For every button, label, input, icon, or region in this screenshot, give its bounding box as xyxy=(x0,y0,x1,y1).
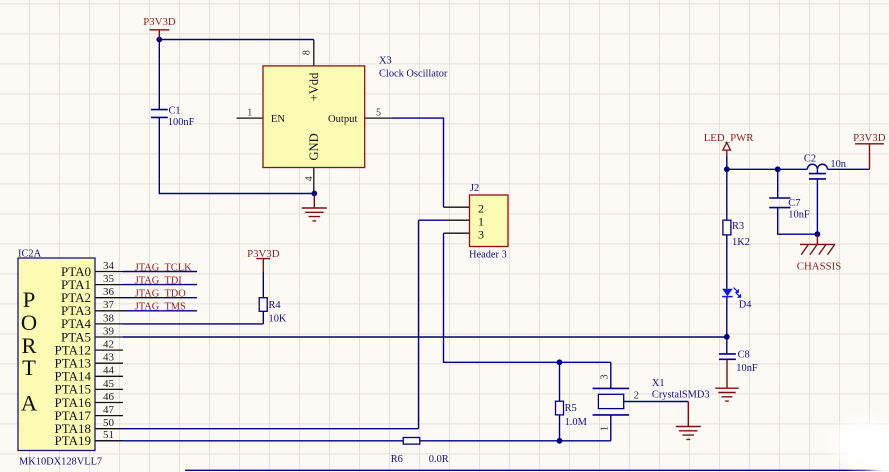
svg-text:C1: C1 xyxy=(169,105,181,116)
svg-text:C2: C2 xyxy=(804,154,816,165)
svg-text:Output: Output xyxy=(328,114,357,125)
svg-text:R6: R6 xyxy=(391,454,403,465)
svg-text:EN: EN xyxy=(271,114,285,125)
svg-text:46: 46 xyxy=(103,391,115,403)
svg-text:Clock Oscillator: Clock Oscillator xyxy=(379,69,448,80)
svg-text:2: 2 xyxy=(478,201,484,215)
svg-text:10n: 10n xyxy=(830,159,846,170)
svg-text:10nF: 10nF xyxy=(736,363,758,374)
svg-text:1.0M: 1.0M xyxy=(565,417,587,428)
svg-text:4: 4 xyxy=(304,176,315,181)
svg-text:P3V3D: P3V3D xyxy=(143,16,176,28)
svg-text:43: 43 xyxy=(103,352,115,364)
svg-text:JTAG_TMS: JTAG_TMS xyxy=(135,302,186,313)
svg-text:44: 44 xyxy=(103,365,115,377)
svg-text:45: 45 xyxy=(103,378,115,390)
svg-text:C8: C8 xyxy=(738,350,750,361)
svg-text:JTAG_TCLK: JTAG_TCLK xyxy=(135,262,192,273)
svg-text:CHASSIS: CHASSIS xyxy=(797,260,841,272)
svg-text:T: T xyxy=(22,355,36,380)
svg-text:Header 3: Header 3 xyxy=(469,249,507,260)
svg-text:R5: R5 xyxy=(565,403,577,414)
svg-text:JTAG_TDI: JTAG_TDI xyxy=(135,275,183,286)
svg-text:51: 51 xyxy=(103,429,114,441)
svg-text:3: 3 xyxy=(478,227,484,241)
svg-text:JTAG_TDO: JTAG_TDO xyxy=(135,289,187,300)
svg-text:J2: J2 xyxy=(470,183,479,194)
svg-text:O: O xyxy=(21,310,37,335)
svg-text:IC2A: IC2A xyxy=(18,249,42,260)
svg-text:39: 39 xyxy=(103,325,115,337)
svg-text:10K: 10K xyxy=(269,314,287,325)
svg-text:42: 42 xyxy=(103,339,114,351)
svg-text:R4: R4 xyxy=(269,300,282,311)
svg-text:8: 8 xyxy=(302,50,313,55)
svg-text:LED_PWR: LED_PWR xyxy=(704,132,755,144)
svg-text:34: 34 xyxy=(103,260,115,272)
svg-text:P3V3D: P3V3D xyxy=(247,248,280,260)
svg-text:3: 3 xyxy=(600,374,611,379)
svg-text:+Vdd: +Vdd xyxy=(307,72,321,101)
svg-text:2: 2 xyxy=(634,391,639,402)
svg-text:100nF: 100nF xyxy=(168,117,195,128)
svg-text:38: 38 xyxy=(103,312,115,324)
svg-text:D4: D4 xyxy=(739,300,753,311)
svg-text:C7: C7 xyxy=(788,198,800,209)
svg-text:1: 1 xyxy=(600,426,611,431)
svg-text:36: 36 xyxy=(103,286,115,298)
svg-text:CrystalSMD3: CrystalSMD3 xyxy=(652,389,710,400)
svg-text:47: 47 xyxy=(103,404,115,416)
svg-text:0.0R: 0.0R xyxy=(429,454,449,465)
svg-text:P3V3D: P3V3D xyxy=(853,132,886,144)
svg-text:1: 1 xyxy=(478,214,484,228)
svg-text:PTA19: PTA19 xyxy=(54,433,91,448)
svg-text:1K2: 1K2 xyxy=(732,237,750,248)
svg-text:5: 5 xyxy=(376,108,381,119)
svg-text:X3: X3 xyxy=(379,56,392,67)
svg-text:1: 1 xyxy=(247,108,252,119)
svg-text:35: 35 xyxy=(103,273,115,285)
svg-text:MK10DX128VLL7: MK10DX128VLL7 xyxy=(19,457,102,468)
svg-text:50: 50 xyxy=(103,417,115,429)
svg-text:37: 37 xyxy=(103,299,115,311)
svg-text:GND: GND xyxy=(307,133,321,160)
svg-text:A: A xyxy=(21,391,38,416)
svg-text:P: P xyxy=(23,287,36,312)
svg-text:R3: R3 xyxy=(732,221,744,232)
svg-text:10nF: 10nF xyxy=(788,210,810,221)
svg-text:X1: X1 xyxy=(652,378,665,389)
